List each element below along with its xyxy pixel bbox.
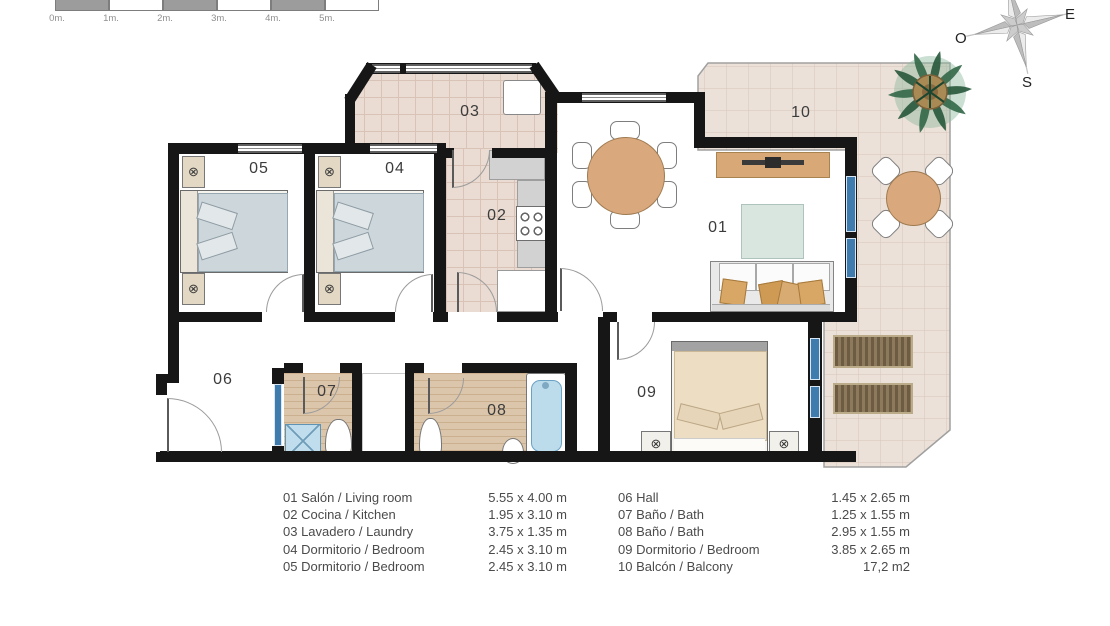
legend-room-name: 06 Hall (618, 489, 760, 506)
floor-plan-page: E O S 0m. 1m. 2m. 3m. 4m. 5m. ⊗ ⊗ ⊗ ⊗ (0, 0, 1110, 626)
bed-double (316, 190, 424, 273)
wall-segment (272, 446, 284, 462)
legend-room-name: 09 Dormitorio / Bedroom (618, 541, 760, 558)
legend-names-right: 06 Hall 07 Baño / Bath 08 Baño / Bath 09… (618, 489, 760, 575)
legend-room-dims: 3.85 x 2.65 m (788, 541, 910, 558)
legend-room-name: 01 Salón / Living room (283, 489, 425, 506)
room-label-bedroom4: 04 (385, 160, 405, 178)
compass-rose: E O S (955, 0, 1079, 91)
sun-lounger (833, 383, 913, 414)
washing-machine (503, 80, 541, 115)
room-label-hall: 06 (213, 371, 233, 389)
scale-label: 1m. (103, 13, 119, 24)
compass-west-label: O (955, 30, 967, 47)
window (582, 93, 666, 102)
sofa (710, 261, 834, 312)
wall-segment (462, 363, 565, 373)
scale-segment (217, 0, 271, 11)
bed-headboard (317, 191, 334, 272)
legend-room-name: 05 Dormitorio / Bedroom (283, 558, 425, 575)
tv-console (716, 152, 830, 178)
legend-room-name: 02 Cocina / Kitchen (283, 506, 425, 523)
wall-segment (156, 374, 179, 383)
wall-segment (156, 383, 167, 395)
scale-segment (109, 0, 163, 11)
patio-table-round (886, 171, 941, 226)
bathtub-drain (542, 382, 549, 389)
compass-south-label: S (1022, 74, 1032, 91)
window (810, 338, 820, 380)
wall-segment (434, 148, 446, 312)
legend-room-name: 07 Baño / Bath (618, 506, 760, 523)
scale-label: 5m. (319, 13, 335, 24)
kitchen-cabinet (497, 270, 548, 312)
wall-segment (565, 363, 577, 462)
legend-room-dims: 1.95 x 3.10 m (445, 506, 567, 523)
wall-segment (433, 312, 448, 322)
bed-headboard (181, 191, 198, 272)
window (238, 144, 302, 153)
sofa-pillow (719, 278, 747, 306)
bed-double (671, 341, 768, 458)
legend-names-left: 01 Salón / Living room 02 Cocina / Kitch… (283, 489, 425, 575)
legend-room-name: 03 Lavadero / Laundry (283, 523, 425, 540)
tv-base (765, 157, 781, 168)
wall-segment (545, 92, 557, 312)
scale-label: 2m. (157, 13, 173, 24)
legend-room-dims: 5.55 x 4.00 m (445, 489, 567, 506)
bathtub (526, 373, 566, 457)
scale-segment (325, 0, 379, 11)
legend-room-dims: 3.75 x 1.35 m (445, 523, 567, 540)
bathtub-basin (531, 380, 562, 452)
wall-segment (352, 363, 362, 462)
room-label-balcony: 10 (791, 104, 811, 122)
window-glass-door (846, 176, 856, 232)
wall-segment (652, 312, 857, 322)
legend-dims-right: 1.45 x 2.65 m 1.25 x 1.55 m 2.95 x 1.55 … (788, 489, 910, 575)
legend-room-name: 10 Balcón / Balcony (618, 558, 760, 575)
wall-segment (160, 451, 856, 462)
legend-room-dims: 2.45 x 3.10 m (445, 541, 567, 558)
legend-room-dims: 2.95 x 1.55 m (788, 523, 910, 540)
window (810, 386, 820, 418)
stove-cooktop (516, 206, 547, 241)
room-label-laundry: 03 (460, 103, 480, 121)
utility-strip (362, 373, 407, 459)
bed-double (180, 190, 288, 273)
scale-segment (55, 0, 109, 11)
wall-segment (179, 312, 262, 322)
legend-room-dims: 17,2 m2 (788, 558, 910, 575)
legend-room-dims: 1.45 x 2.65 m (788, 489, 910, 506)
room-label-bath7: 07 (317, 383, 337, 401)
scale-segment (163, 0, 217, 11)
wall-segment (497, 312, 558, 322)
room-label-bath8: 08 (487, 402, 507, 420)
scale-label: 0m. (49, 13, 65, 24)
window-glass-door (846, 238, 856, 278)
room-label-bedroom5: 05 (249, 160, 269, 178)
wall-segment (694, 137, 857, 148)
sofa-back (712, 304, 830, 311)
bed-headrail (672, 342, 767, 351)
legend-room-dims: 1.25 x 1.55 m (788, 506, 910, 523)
legend-room-name: 04 Dormitorio / Bedroom (283, 541, 425, 558)
scale-label: 4m. (265, 13, 281, 24)
room-label-living: 01 (708, 219, 728, 237)
glass-door (274, 384, 282, 446)
bed-blanket (674, 351, 767, 441)
compass-east-label: E (1065, 6, 1075, 23)
sun-lounger (833, 335, 913, 368)
wall-segment (598, 317, 610, 462)
room-label-kitchen: 02 (487, 207, 507, 225)
wall-segment (340, 363, 352, 373)
wall-segment (168, 143, 179, 383)
scale-segment (271, 0, 325, 11)
scale-label: 3m. (211, 13, 227, 24)
wall-segment (272, 368, 284, 384)
wall-segment (405, 363, 414, 462)
wall-segment (304, 143, 315, 312)
dining-table-round (587, 137, 665, 215)
wall-segment (345, 94, 355, 148)
coffee-table-rug (741, 204, 804, 259)
window (372, 64, 400, 73)
legend-room-name: 08 Baño / Bath (618, 523, 760, 540)
legend-room-dims: 2.45 x 3.10 m (445, 558, 567, 575)
wall-segment (284, 363, 303, 373)
window (370, 144, 437, 153)
legend-dims-left: 5.55 x 4.00 m 1.95 x 3.10 m 3.75 x 1.35 … (445, 489, 567, 575)
window (406, 64, 532, 73)
room-label-bedroom9: 09 (637, 384, 657, 402)
wall-segment (304, 312, 395, 322)
